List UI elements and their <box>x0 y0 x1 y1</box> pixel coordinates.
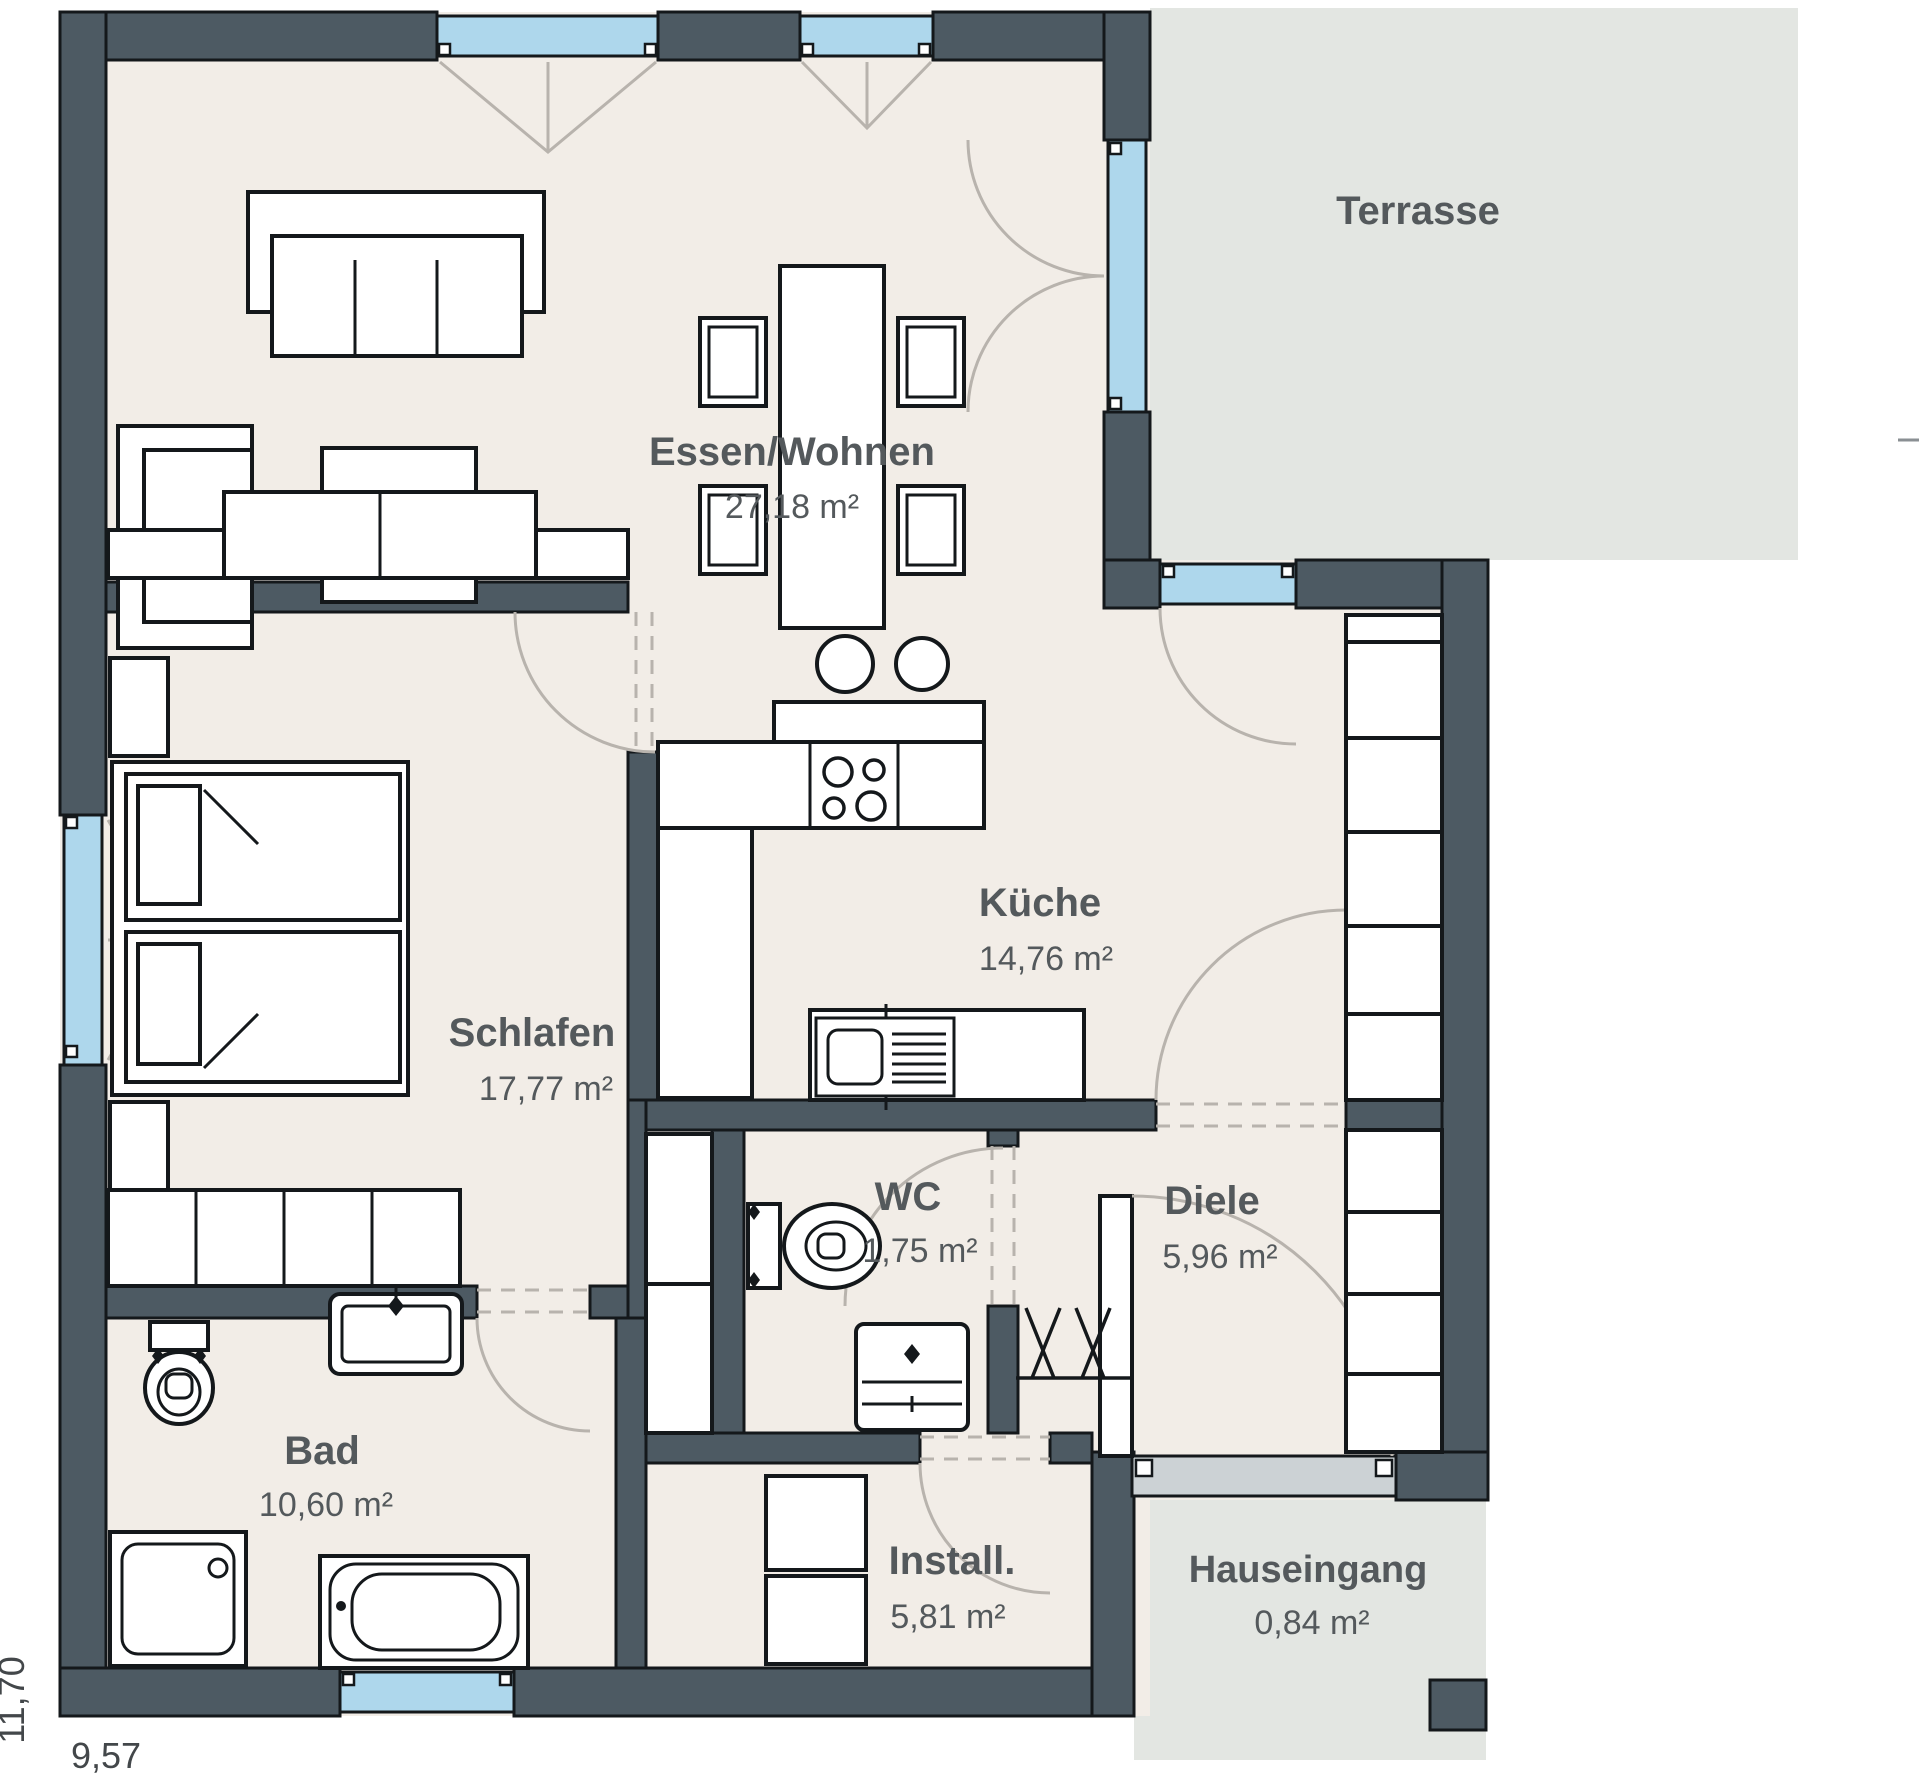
label-kueche: Küche <box>979 881 1101 925</box>
dimension-height: 11,70 <box>0 1656 32 1743</box>
counter-left-column <box>658 828 752 1098</box>
window-bad <box>340 1672 514 1712</box>
floor-plan-svg: Essen/Wohnen 27,18 m² Terrasse Küche 14,… <box>0 0 1920 1781</box>
bar-stool <box>817 636 873 692</box>
label-install: Install. <box>889 1539 1016 1583</box>
bar-counter <box>774 702 984 742</box>
nightstand <box>110 1102 168 1200</box>
label-schlafen: Schlafen <box>449 1011 616 1055</box>
area-install: 5,81 m² <box>890 1598 1005 1636</box>
bathtub <box>320 1556 528 1668</box>
counter-sink-run <box>810 1010 1084 1100</box>
area-essen-wohnen: 27,18 m² <box>725 488 859 526</box>
appliance <box>766 1476 866 1570</box>
terrace-french-door <box>1108 140 1146 412</box>
label-diele: Diele <box>1164 1179 1260 1223</box>
area-wc: 1,75 m² <box>862 1232 977 1270</box>
shower <box>110 1532 246 1666</box>
label-hauseingang: Hauseingang <box>1189 1549 1428 1591</box>
label-terrasse: Terrasse <box>1336 189 1500 233</box>
area-hauseingang: 0,84 m² <box>1254 1604 1369 1642</box>
counter-top-run <box>658 742 984 828</box>
closet-column-right <box>1346 615 1442 1452</box>
front-door-leaf <box>1100 1196 1132 1456</box>
bad-basin <box>330 1286 462 1374</box>
terrace-kitchen-door <box>1160 564 1296 604</box>
wc-basin <box>856 1324 968 1430</box>
appliance <box>766 1576 866 1664</box>
label-wc: WC <box>875 1175 942 1219</box>
window-schlafen <box>64 815 102 1065</box>
entrance-pillar <box>1430 1680 1486 1730</box>
pillow <box>138 786 200 904</box>
terrasse-area <box>1150 8 1798 560</box>
bar-stool <box>896 638 948 690</box>
area-kueche: 14,76 m² <box>979 940 1113 978</box>
closet-strip-wc <box>646 1134 712 1433</box>
install-furniture <box>766 1476 866 1664</box>
area-schlafen: 17,77 m² <box>479 1070 613 1108</box>
pillow <box>138 944 200 1064</box>
sofa-seat <box>272 236 522 356</box>
wc-toilet <box>748 1204 880 1288</box>
area-diele: 5,96 m² <box>1162 1238 1277 1276</box>
window-living-2 <box>800 16 933 56</box>
floor-plan-page: Essen/Wohnen 27,18 m² Terrasse Küche 14,… <box>0 0 1920 1781</box>
wardrobe-row <box>108 1190 460 1286</box>
entrance-threshold <box>1132 1456 1396 1496</box>
nightstand <box>110 658 168 756</box>
bad-toilet <box>145 1322 213 1424</box>
window-living-1 <box>437 16 658 56</box>
label-bad: Bad <box>284 1429 360 1473</box>
area-bad: 10,60 m² <box>259 1486 393 1524</box>
label-essen-wohnen: Essen/Wohnen <box>649 430 935 474</box>
dimension-width: 9,57 <box>71 1735 141 1776</box>
